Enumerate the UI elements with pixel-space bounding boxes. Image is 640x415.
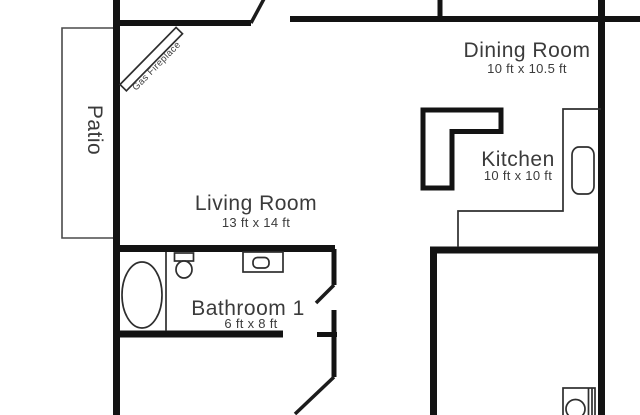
kitchen-dims: 10 ft x 10 ft [484,168,552,183]
toilet-bowl-icon [176,261,192,278]
toilet-tank-icon [175,253,194,261]
washer-icon [563,388,595,415]
floor-plan-canvas: Living Room 13 ft x 14 ft Dining Room 10… [0,0,640,415]
door-swing-hallway [295,377,334,414]
sink-basin-icon [253,258,269,269]
bathtub-icon [122,262,162,328]
patio-label: Patio [83,105,106,155]
door-swing-bathroom [316,285,334,303]
washer-body [563,388,595,415]
bathroom-dims: 6 ft x 8 ft [224,316,277,331]
dining-room-label: Dining Room [464,39,591,62]
refrigerator-icon [572,147,594,194]
living-room-label: Living Room [195,192,317,215]
dining-room-dims: 10 ft x 10.5 ft [487,61,567,76]
door-swing-top-entry [251,0,265,23]
floor-plan: Living Room 13 ft x 14 ft Dining Room 10… [0,0,640,415]
gas-fireplace-icon [120,27,182,90]
living-room-dims: 13 ft x 14 ft [222,215,290,230]
